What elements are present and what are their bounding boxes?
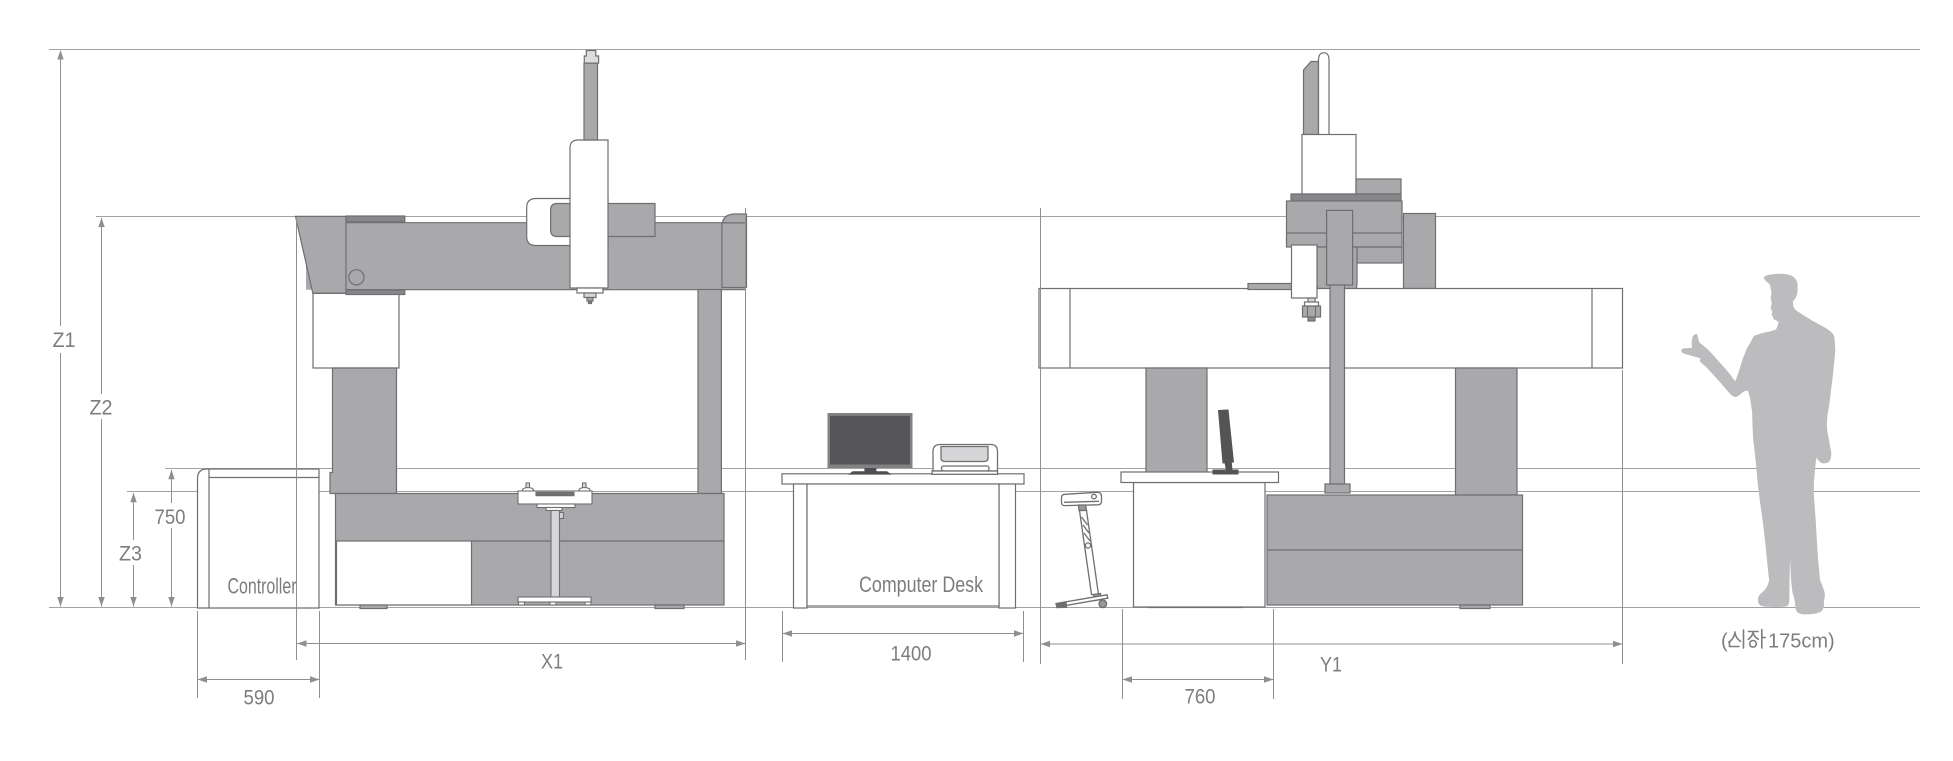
svg-text:(: ( bbox=[1721, 631, 1728, 653]
svg-text:X1: X1 bbox=[541, 651, 563, 674]
svg-text:175cm): 175cm) bbox=[1768, 631, 1835, 653]
svg-text:590: 590 bbox=[244, 687, 275, 710]
svg-text:Z3: Z3 bbox=[119, 543, 142, 566]
svg-text:760: 760 bbox=[1185, 686, 1216, 709]
svg-text:1400: 1400 bbox=[891, 643, 932, 666]
svg-text:Controller: Controller bbox=[228, 574, 297, 599]
svg-text:Z2: Z2 bbox=[90, 397, 113, 420]
svg-text:750: 750 bbox=[155, 506, 186, 529]
svg-text:Computer Desk: Computer Desk bbox=[859, 572, 984, 597]
svg-text:Z1: Z1 bbox=[53, 329, 76, 352]
svg-text:Y1: Y1 bbox=[1320, 654, 1342, 677]
